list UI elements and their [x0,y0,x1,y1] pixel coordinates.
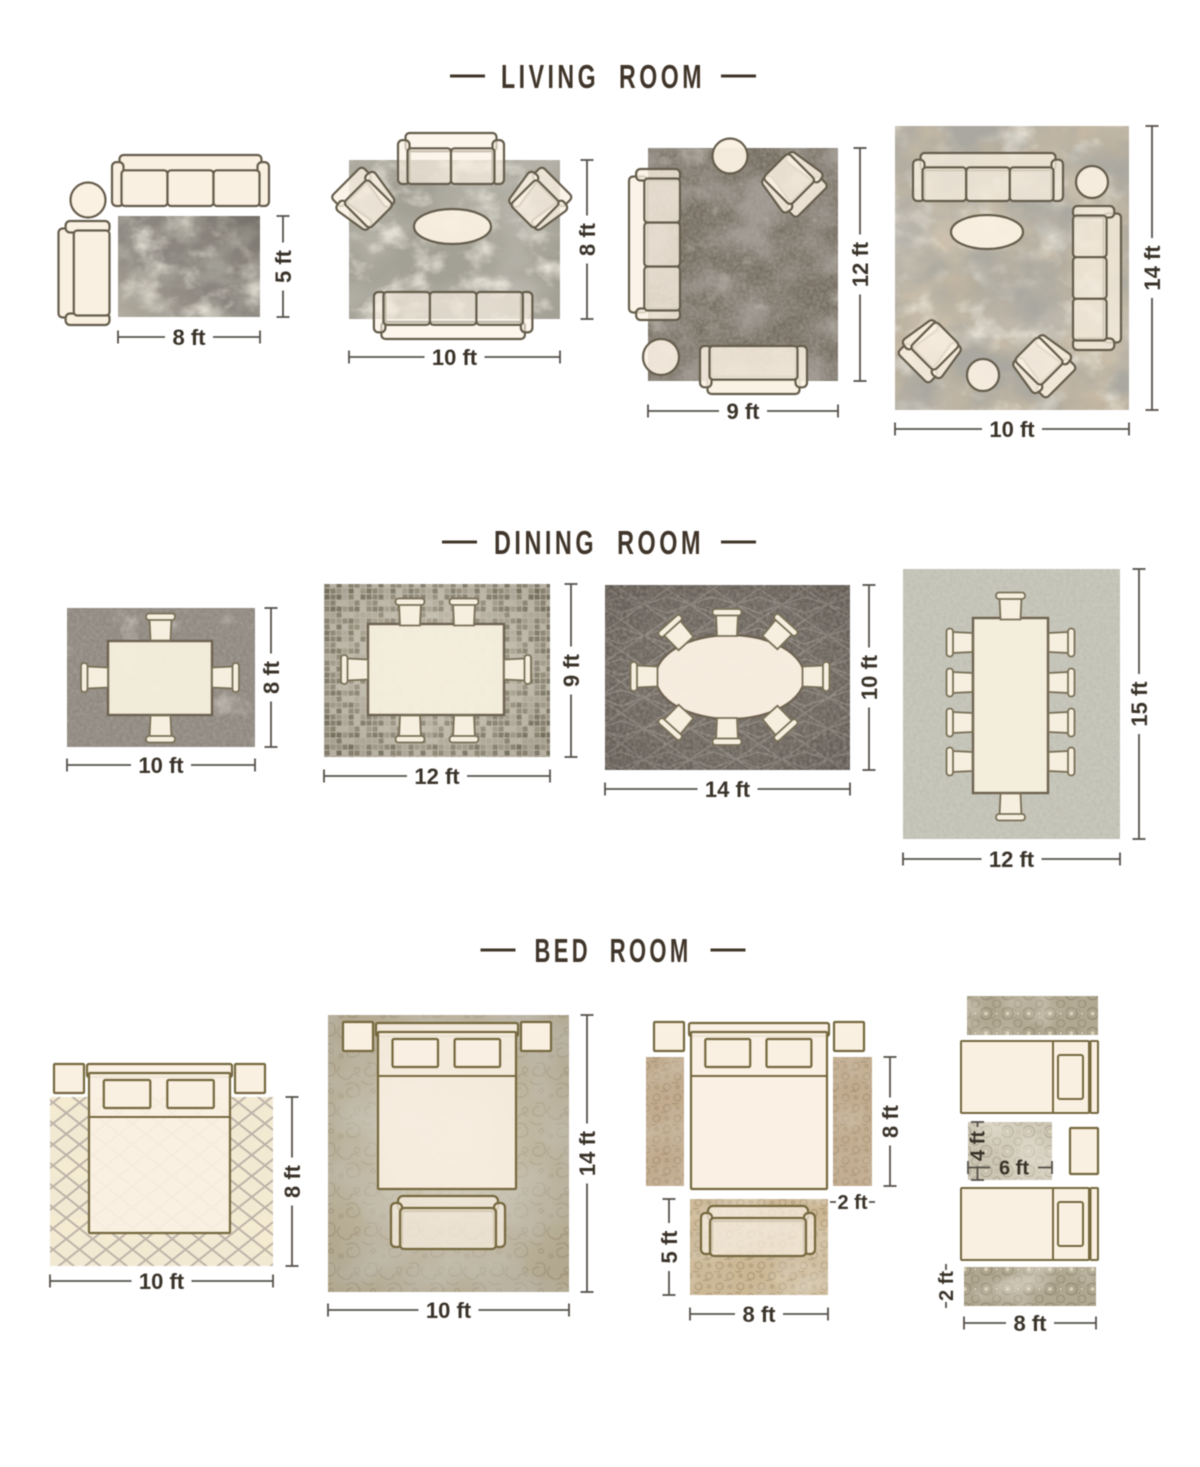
svg-text:12 ft: 12 ft [414,764,460,789]
svg-text:BED ROOM: BED ROOM [535,932,692,969]
svg-text:4 ft: 4 ft [968,1131,990,1161]
svg-text:10 ft: 10 ft [432,345,478,370]
svg-text:10 ft: 10 ft [989,417,1035,442]
svg-text:2 ft: 2 ft [936,1271,958,1301]
svg-text:5 ft: 5 ft [271,249,296,283]
svg-text:9 ft: 9 ft [559,653,584,687]
svg-text:LIVING ROOM: LIVING ROOM [501,58,705,95]
svg-text:8 ft: 8 ft [878,1104,903,1138]
svg-text:10 ft: 10 ft [426,1298,472,1323]
svg-text:8 ft: 8 ft [743,1302,777,1327]
svg-text:10 ft: 10 ft [857,654,882,700]
svg-text:14 ft: 14 ft [575,1130,600,1176]
svg-text:8 ft: 8 ft [173,325,207,350]
svg-text:DINING ROOM: DINING ROOM [494,524,704,561]
svg-text:10 ft: 10 ft [139,1269,185,1294]
svg-text:15 ft: 15 ft [1127,681,1152,727]
svg-text:6 ft: 6 ft [999,1158,1029,1180]
svg-text:5 ft: 5 ft [657,1230,682,1264]
svg-text:10 ft: 10 ft [138,753,184,778]
svg-text:8 ft: 8 ft [259,660,284,694]
svg-text:14 ft: 14 ft [1140,245,1165,291]
svg-text:8 ft: 8 ft [280,1164,305,1198]
svg-text:12 ft: 12 ft [848,241,873,287]
svg-text:14 ft: 14 ft [705,777,751,802]
svg-text:12 ft: 12 ft [989,847,1035,872]
svg-text:8 ft: 8 ft [575,222,600,256]
svg-text:9 ft: 9 ft [727,399,761,424]
svg-text:8 ft: 8 ft [1014,1311,1048,1336]
svg-text:2 ft: 2 ft [838,1192,868,1214]
